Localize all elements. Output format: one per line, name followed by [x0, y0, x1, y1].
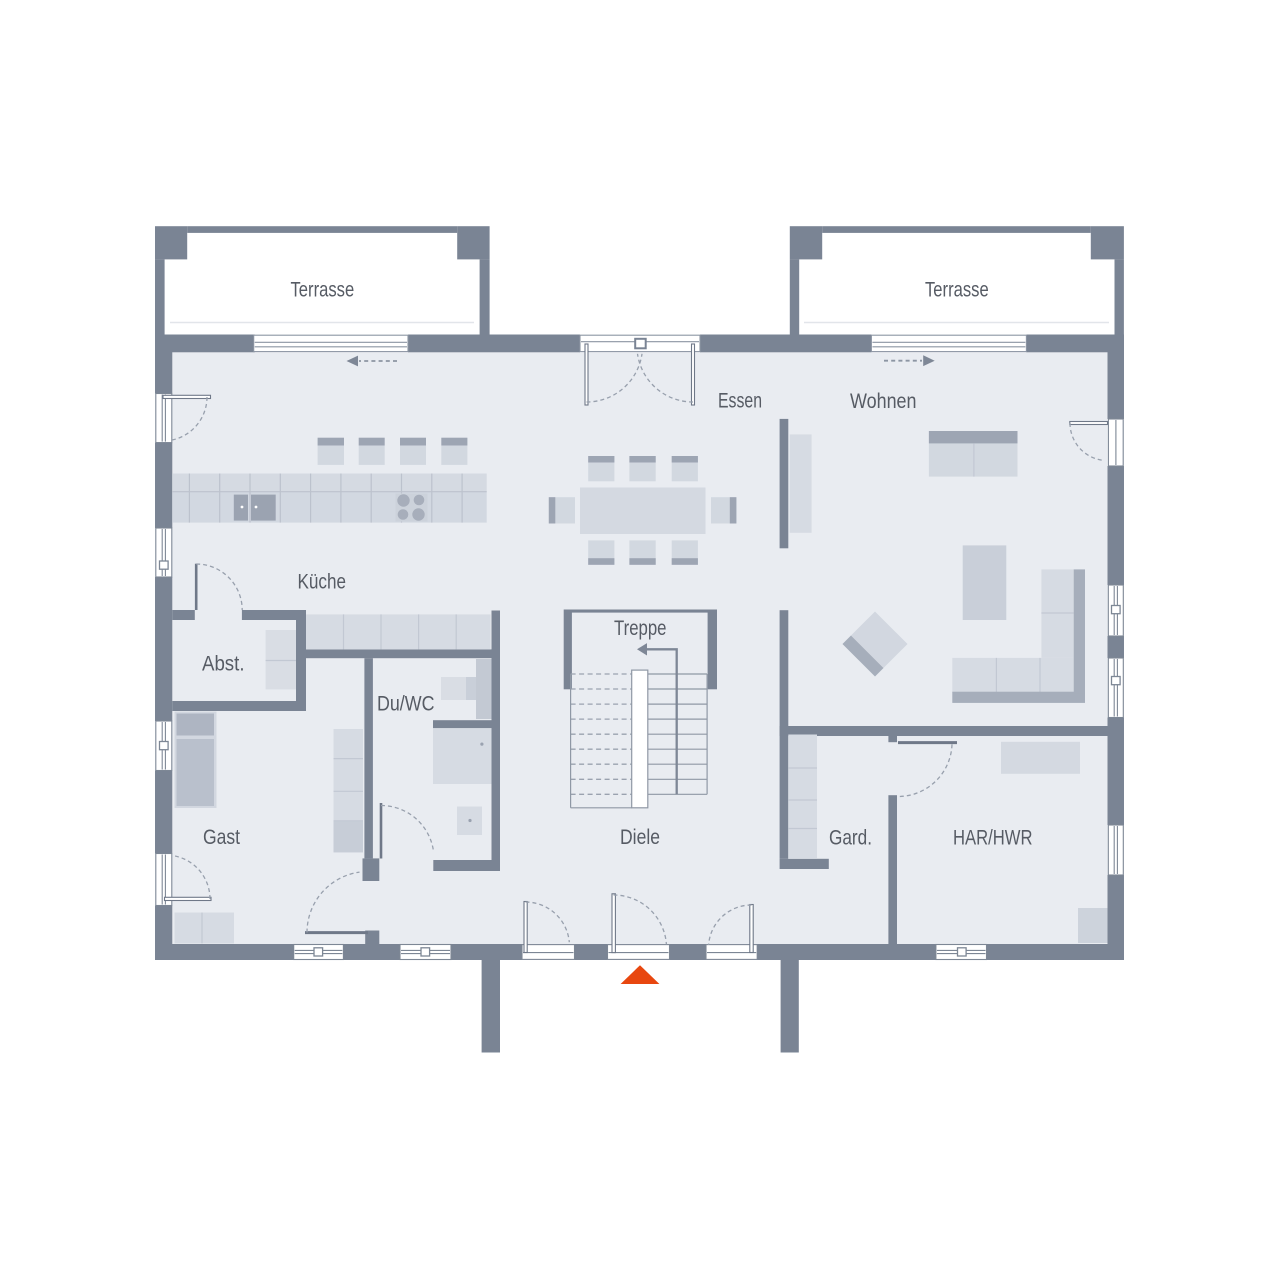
svg-text:Terrasse: Terrasse [925, 278, 989, 301]
svg-text:Wohnen: Wohnen [850, 390, 917, 413]
svg-text:Gast: Gast [203, 826, 240, 849]
svg-text:Diele: Diele [620, 826, 660, 849]
svg-text:Essen: Essen [718, 390, 762, 413]
svg-text:Küche: Küche [298, 571, 347, 594]
svg-text:Treppe: Treppe [614, 617, 667, 640]
svg-text:Abst.: Abst. [202, 653, 245, 676]
svg-text:HAR/HWR: HAR/HWR [953, 827, 1033, 850]
svg-text:Terrasse: Terrasse [291, 278, 355, 301]
svg-text:Du/WC: Du/WC [377, 693, 435, 716]
svg-text:Gard.: Gard. [829, 827, 872, 850]
